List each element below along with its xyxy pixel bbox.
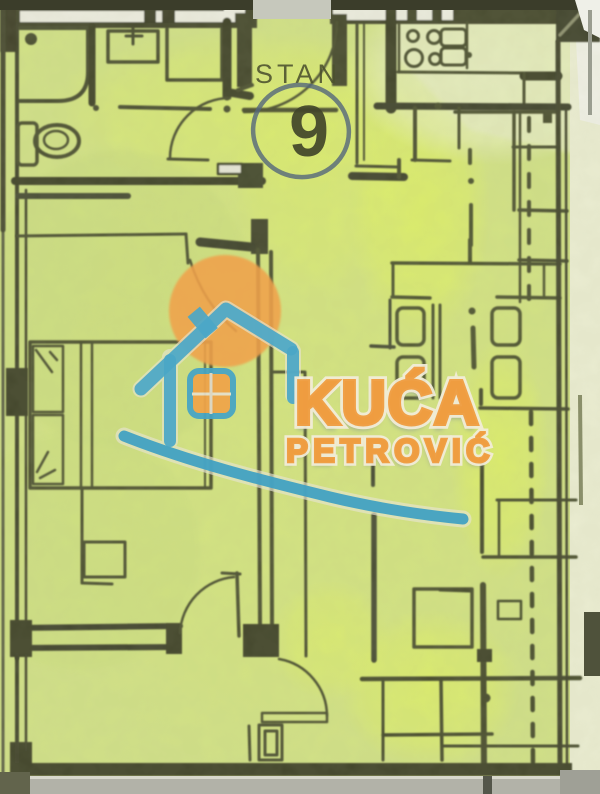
svg-text:9: 9: [289, 92, 329, 172]
svg-text:KUĆA: KUĆA: [295, 369, 480, 438]
svg-text:PETROVIĆ: PETROVIĆ: [286, 432, 495, 469]
